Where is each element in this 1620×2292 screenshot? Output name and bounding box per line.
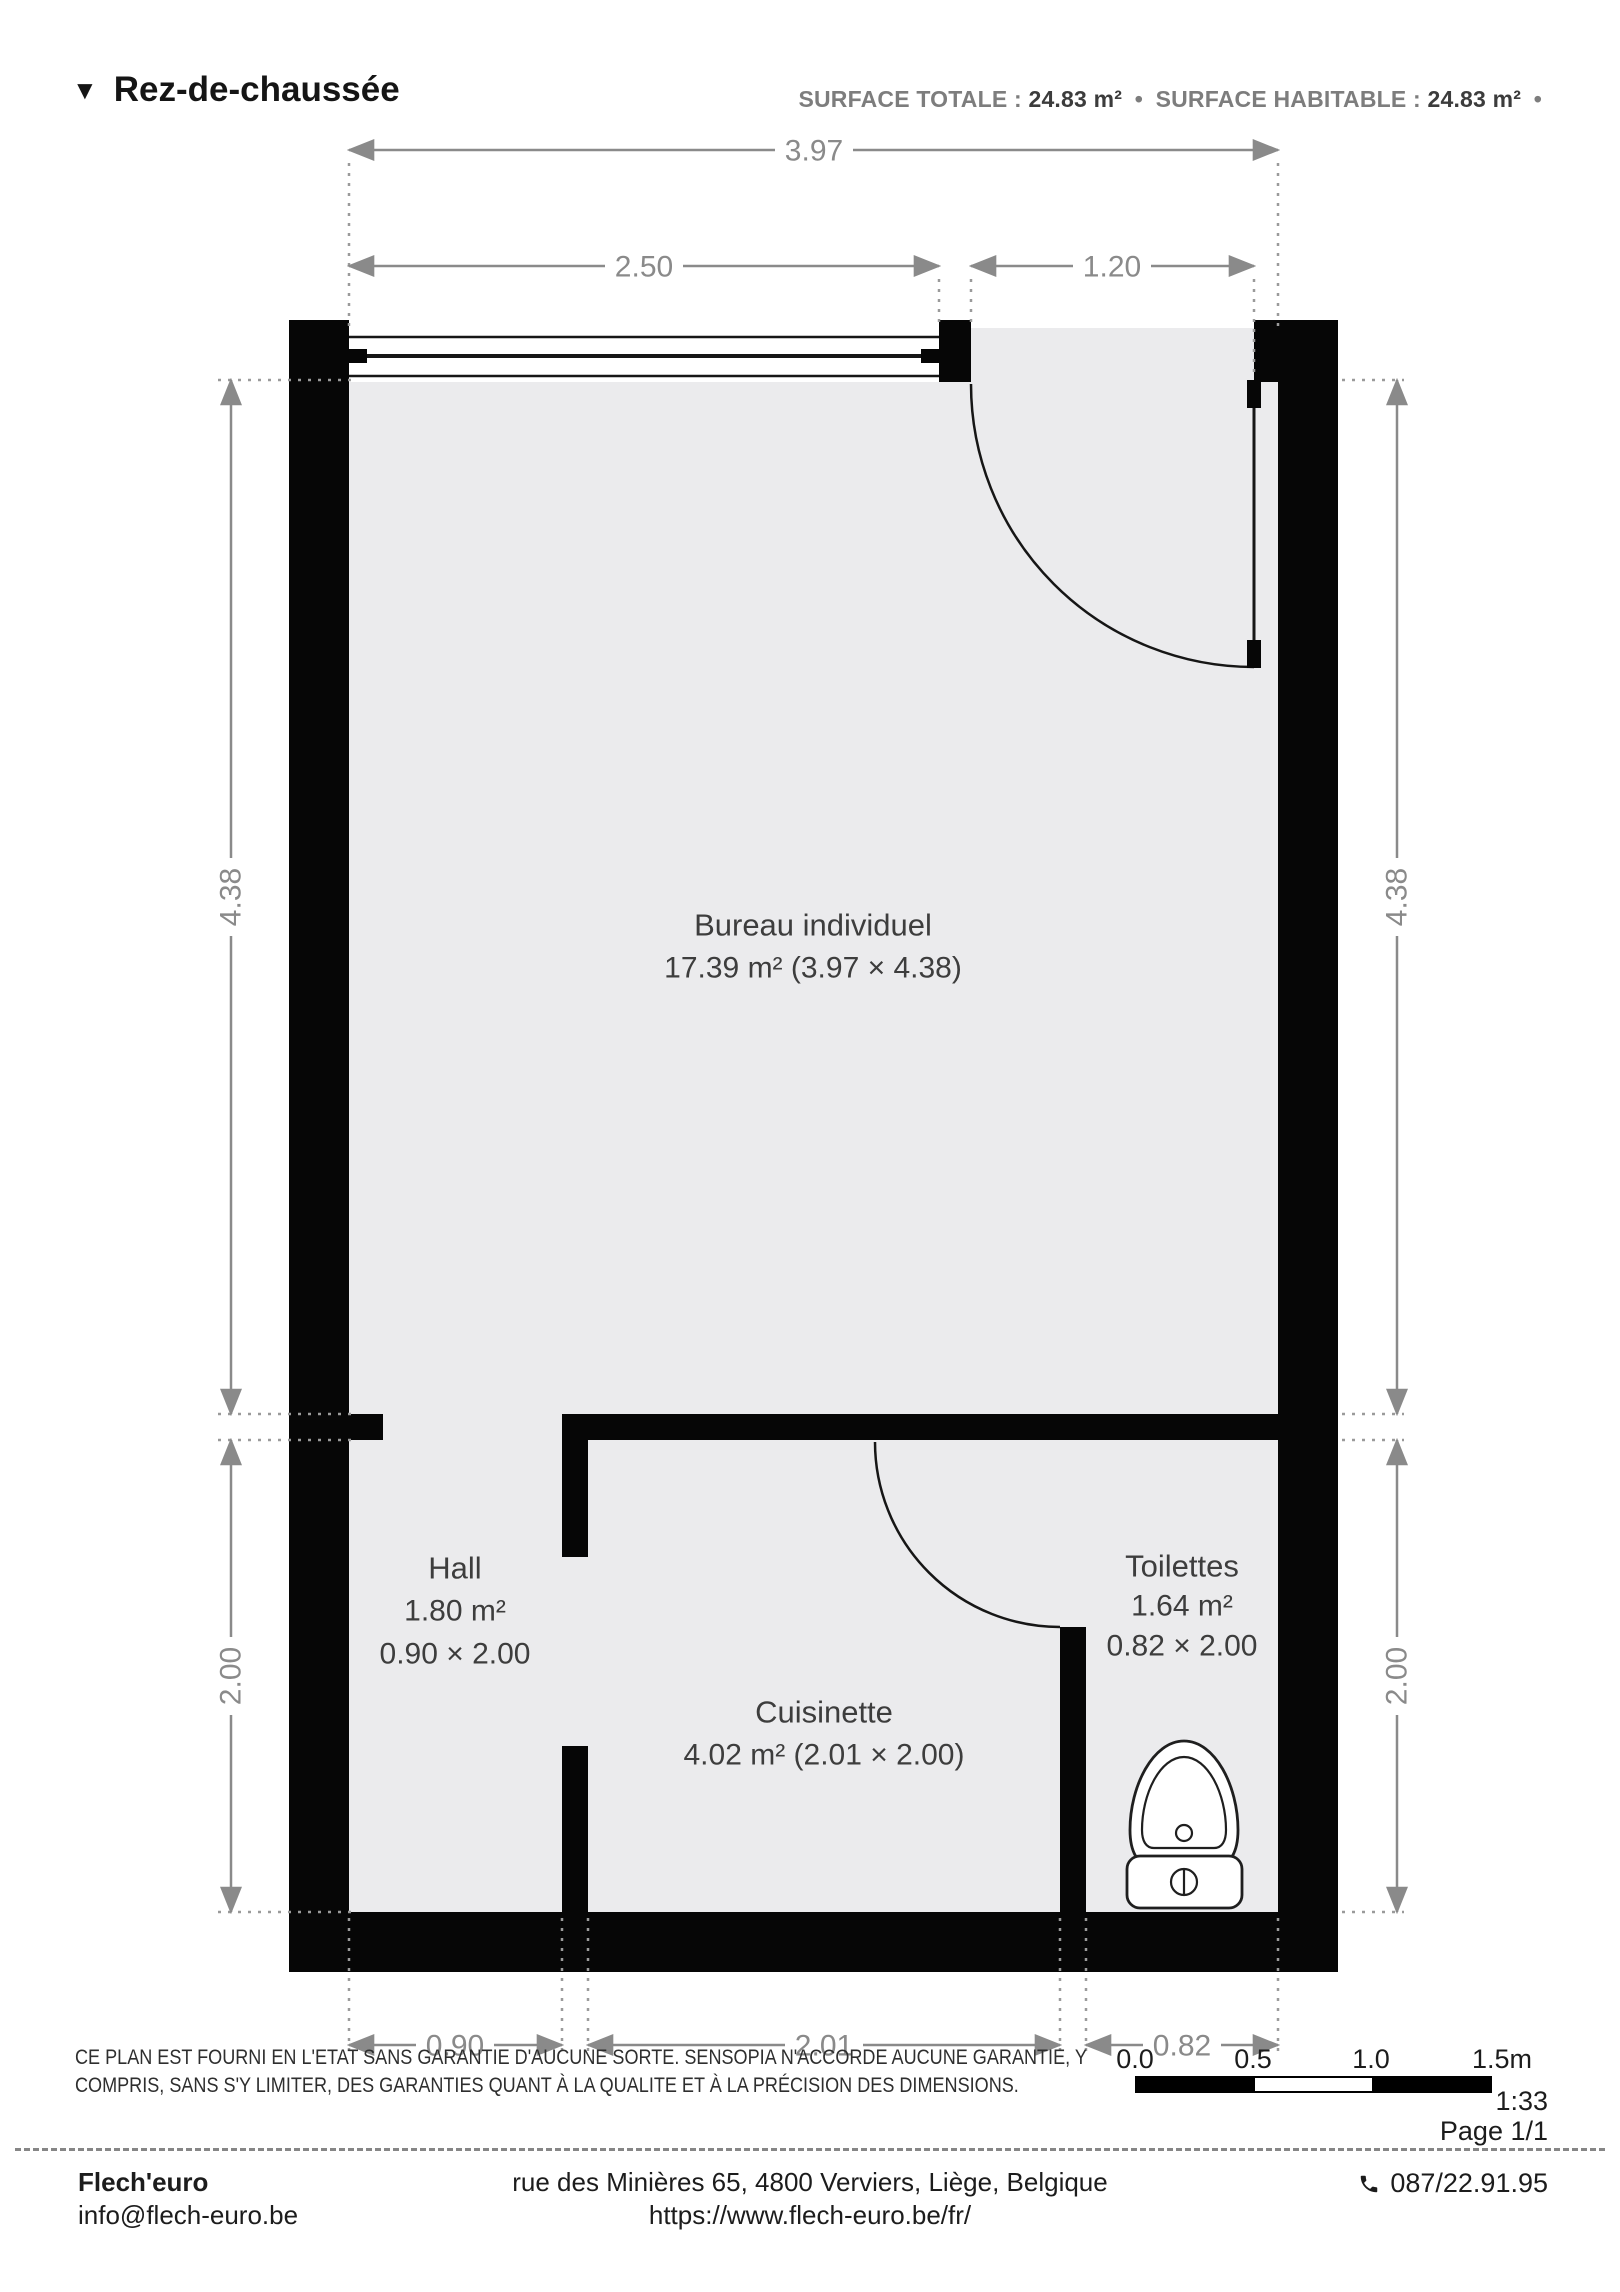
wall-top-right-corner <box>1254 320 1338 382</box>
door-tip-tick <box>1247 640 1261 668</box>
window-end-cap <box>349 349 367 363</box>
company-website: https://www.flech-euro.be/fr/ <box>0 2199 1620 2232</box>
wall-hall-lower <box>562 1746 588 1912</box>
disclaimer: CE PLAN EST FOURNI EN L'ETAT SANS GARANT… <box>75 2044 1087 2099</box>
dim-window-width: 2.50 <box>615 251 673 284</box>
wall-right <box>1278 320 1338 1972</box>
room-toilettes-size: 0.82 × 2.00 <box>1107 1630 1258 1663</box>
room-hall-size: 0.90 × 2.00 <box>380 1638 531 1671</box>
wall-toilettes-divider <box>1060 1627 1086 1912</box>
room-hall-name: Hall <box>428 1551 481 1586</box>
window <box>349 320 939 382</box>
room-toilettes-name: Toilettes <box>1125 1549 1239 1584</box>
footer-phone-block: 087/22.91.95 <box>1358 2168 1548 2199</box>
dim-total-width: 3.97 <box>785 135 843 168</box>
scalebar-tick-3: 1.5m <box>1472 2044 1532 2075</box>
room-cuisinette-details: 4.02 m² (2.01 × 2.00) <box>684 1739 965 1772</box>
room-cuisinette-name: Cuisinette <box>755 1695 893 1730</box>
dim-right-lower: 2.00 <box>1381 1647 1414 1705</box>
wall-hall-upper <box>562 1440 588 1557</box>
company-phone: 087/22.91.95 <box>1390 2168 1548 2199</box>
floorplan-drawing: 3.97 2.50 1.20 4.38 2.00 4.38 2.00 0.90 … <box>0 0 1620 2292</box>
floorplan-page: ▼ Rez-de-chaussée SURFACE TOTALE : 24.83… <box>0 0 1620 2292</box>
wall-top-stub <box>939 320 971 382</box>
wall-hall-stub <box>349 1414 383 1440</box>
scalebar-tick-1: 0.5 <box>1234 2044 1272 2075</box>
wall-bottom <box>289 1912 1338 1972</box>
door-hinge-tick <box>1247 380 1261 408</box>
scalebar-segment <box>1255 2078 1373 2091</box>
scalebar-segment <box>1372 2078 1490 2091</box>
room-bureau-name: Bureau individuel <box>694 908 932 943</box>
scale-ratio: 1:33 <box>1495 2086 1548 2117</box>
dim-left-upper: 4.38 <box>215 868 248 926</box>
dim-right-upper: 4.38 <box>1381 868 1414 926</box>
window-end-cap <box>921 349 939 363</box>
scalebar <box>1135 2076 1492 2093</box>
scalebar-segment <box>1137 2078 1255 2091</box>
phone-icon <box>1358 2173 1380 2195</box>
page-number: Page 1/1 <box>1440 2116 1548 2147</box>
wall-left <box>289 320 349 1972</box>
scalebar-tick-0: 0.0 <box>1116 2044 1154 2075</box>
room-toilettes-area: 1.64 m² <box>1131 1590 1233 1623</box>
floor-area <box>349 328 1278 1912</box>
dim-left-lower: 2.00 <box>215 1647 248 1705</box>
dim-door-width: 1.20 <box>1083 251 1141 284</box>
disclaimer-line-2: COMPRIS, SANS S'Y LIMITER, DES GARANTIES… <box>75 2072 1087 2100</box>
room-bureau-details: 17.39 m² (3.97 × 4.38) <box>664 952 962 985</box>
wall-interior-horizontal <box>562 1414 1278 1440</box>
scalebar-tick-2: 1.0 <box>1352 2044 1390 2075</box>
dim-toilettes-width: 0.82 <box>1153 2030 1211 2063</box>
disclaimer-line-1: CE PLAN EST FOURNI EN L'ETAT SANS GARANT… <box>75 2044 1087 2072</box>
room-hall-area: 1.80 m² <box>404 1595 506 1628</box>
footer-separator <box>15 2148 1605 2151</box>
